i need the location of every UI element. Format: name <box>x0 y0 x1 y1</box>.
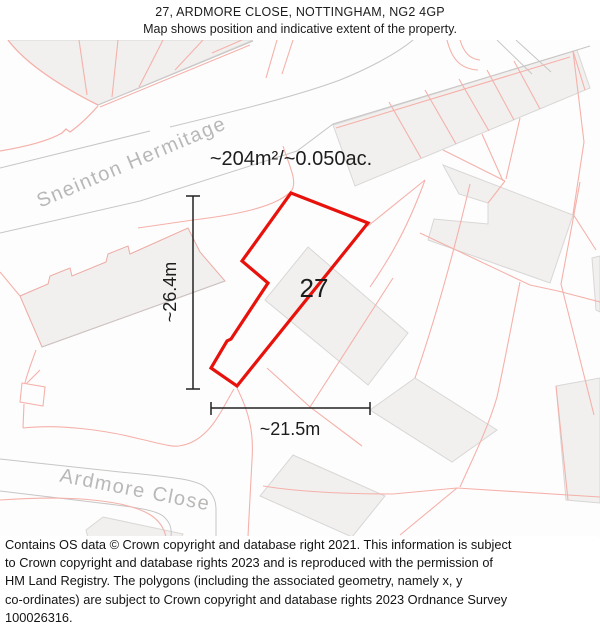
height-measure-label: ~26.4m <box>160 262 180 323</box>
building-bottom-left-centre <box>260 455 385 537</box>
footer-line: co-ordinates) are subject to Crown copyr… <box>5 591 597 609</box>
building-right-partial <box>592 256 600 312</box>
parcel-garden-line-4 <box>460 282 520 487</box>
building-plot-27 <box>265 247 408 385</box>
area-label: ~204m²/~0.050ac. <box>210 148 372 170</box>
building-bottom-left <box>86 517 183 537</box>
building-left-terrace <box>20 228 225 347</box>
page-title: 27, ARDMORE CLOSE, NOTTINGHAM, NG2 4GP <box>0 0 600 19</box>
parcel-junction-curve-south <box>0 106 98 151</box>
street-label-sneinton-hermitage: Sneinton Hermitage <box>34 113 230 213</box>
copyright-footer: Contains OS data © Crown copyright and d… <box>0 536 597 627</box>
parcel-lines-top-mid <box>266 40 293 78</box>
footer-line: to Crown copyright and database rights 2… <box>5 554 597 572</box>
parcel-wavy-line <box>23 389 234 446</box>
property-map-page: 27, ARDMORE CLOSE, NOTTINGHAM, NG2 4GP M… <box>0 0 600 625</box>
page-subtitle: Map shows position and indicative extent… <box>0 19 600 36</box>
width-measure-label: ~21.5m <box>260 419 321 439</box>
footer-line: Contains OS data © Crown copyright and d… <box>5 536 597 554</box>
map-svg: Sneinton Hermitage Ardmore Close ~204m²/… <box>0 40 600 537</box>
map-canvas[interactable]: Sneinton Hermitage Ardmore Close ~204m²/… <box>0 40 600 537</box>
width-measure-line <box>211 402 370 415</box>
building-top-left-block <box>8 40 253 105</box>
footer-line: HM Land Registry. The polygons (includin… <box>5 572 597 590</box>
parcel-line-south-of-27 <box>237 388 252 537</box>
plot-number-label: 27 <box>300 273 329 303</box>
parcel-garden-line-3 <box>415 184 470 378</box>
map-header: 27, ARDMORE CLOSE, NOTTINGHAM, NG2 4GP M… <box>0 0 600 40</box>
building-right-edge <box>556 378 600 503</box>
parcel-small-square <box>20 350 45 428</box>
parcel-curves-north-east <box>447 40 480 70</box>
footer-line: 100026316. <box>5 609 597 627</box>
building-bottom-centre <box>370 378 497 462</box>
parcel-garden-line-2 <box>370 180 425 287</box>
parcel-left-edge-line <box>0 272 20 296</box>
